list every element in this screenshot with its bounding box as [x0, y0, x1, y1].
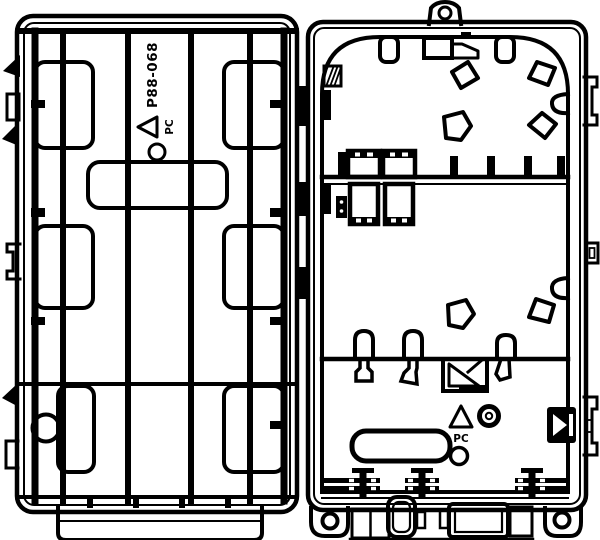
lid-molding-circle: [149, 144, 165, 160]
rail-posts: [450, 156, 565, 177]
technical-drawing: P88-068 PC: [0, 0, 600, 540]
base-cavity: [322, 37, 568, 498]
lid-panel: P88-068 PC: [2, 16, 297, 540]
lid-material-code: PC: [164, 119, 176, 135]
base-molding-circle: [451, 448, 468, 465]
screw-boss: [480, 407, 499, 426]
adapter-holders: [336, 151, 415, 224]
drawing-svg: P88-068 PC: [0, 0, 600, 540]
label-slot: [352, 431, 450, 461]
lid-center-pad: [88, 162, 227, 208]
base-panel: PC: [297, 2, 598, 539]
latch-button: [547, 407, 576, 443]
lid-recess-pads: [35, 62, 284, 472]
lid-part-number: P88-068: [145, 42, 161, 108]
cable-guides: [444, 62, 556, 328]
base-material-code: PC: [453, 433, 469, 445]
lid-recycling-icon: PC: [138, 117, 176, 137]
base-recycling-icon: PC: [450, 406, 472, 445]
cable-wedge: [443, 359, 487, 391]
